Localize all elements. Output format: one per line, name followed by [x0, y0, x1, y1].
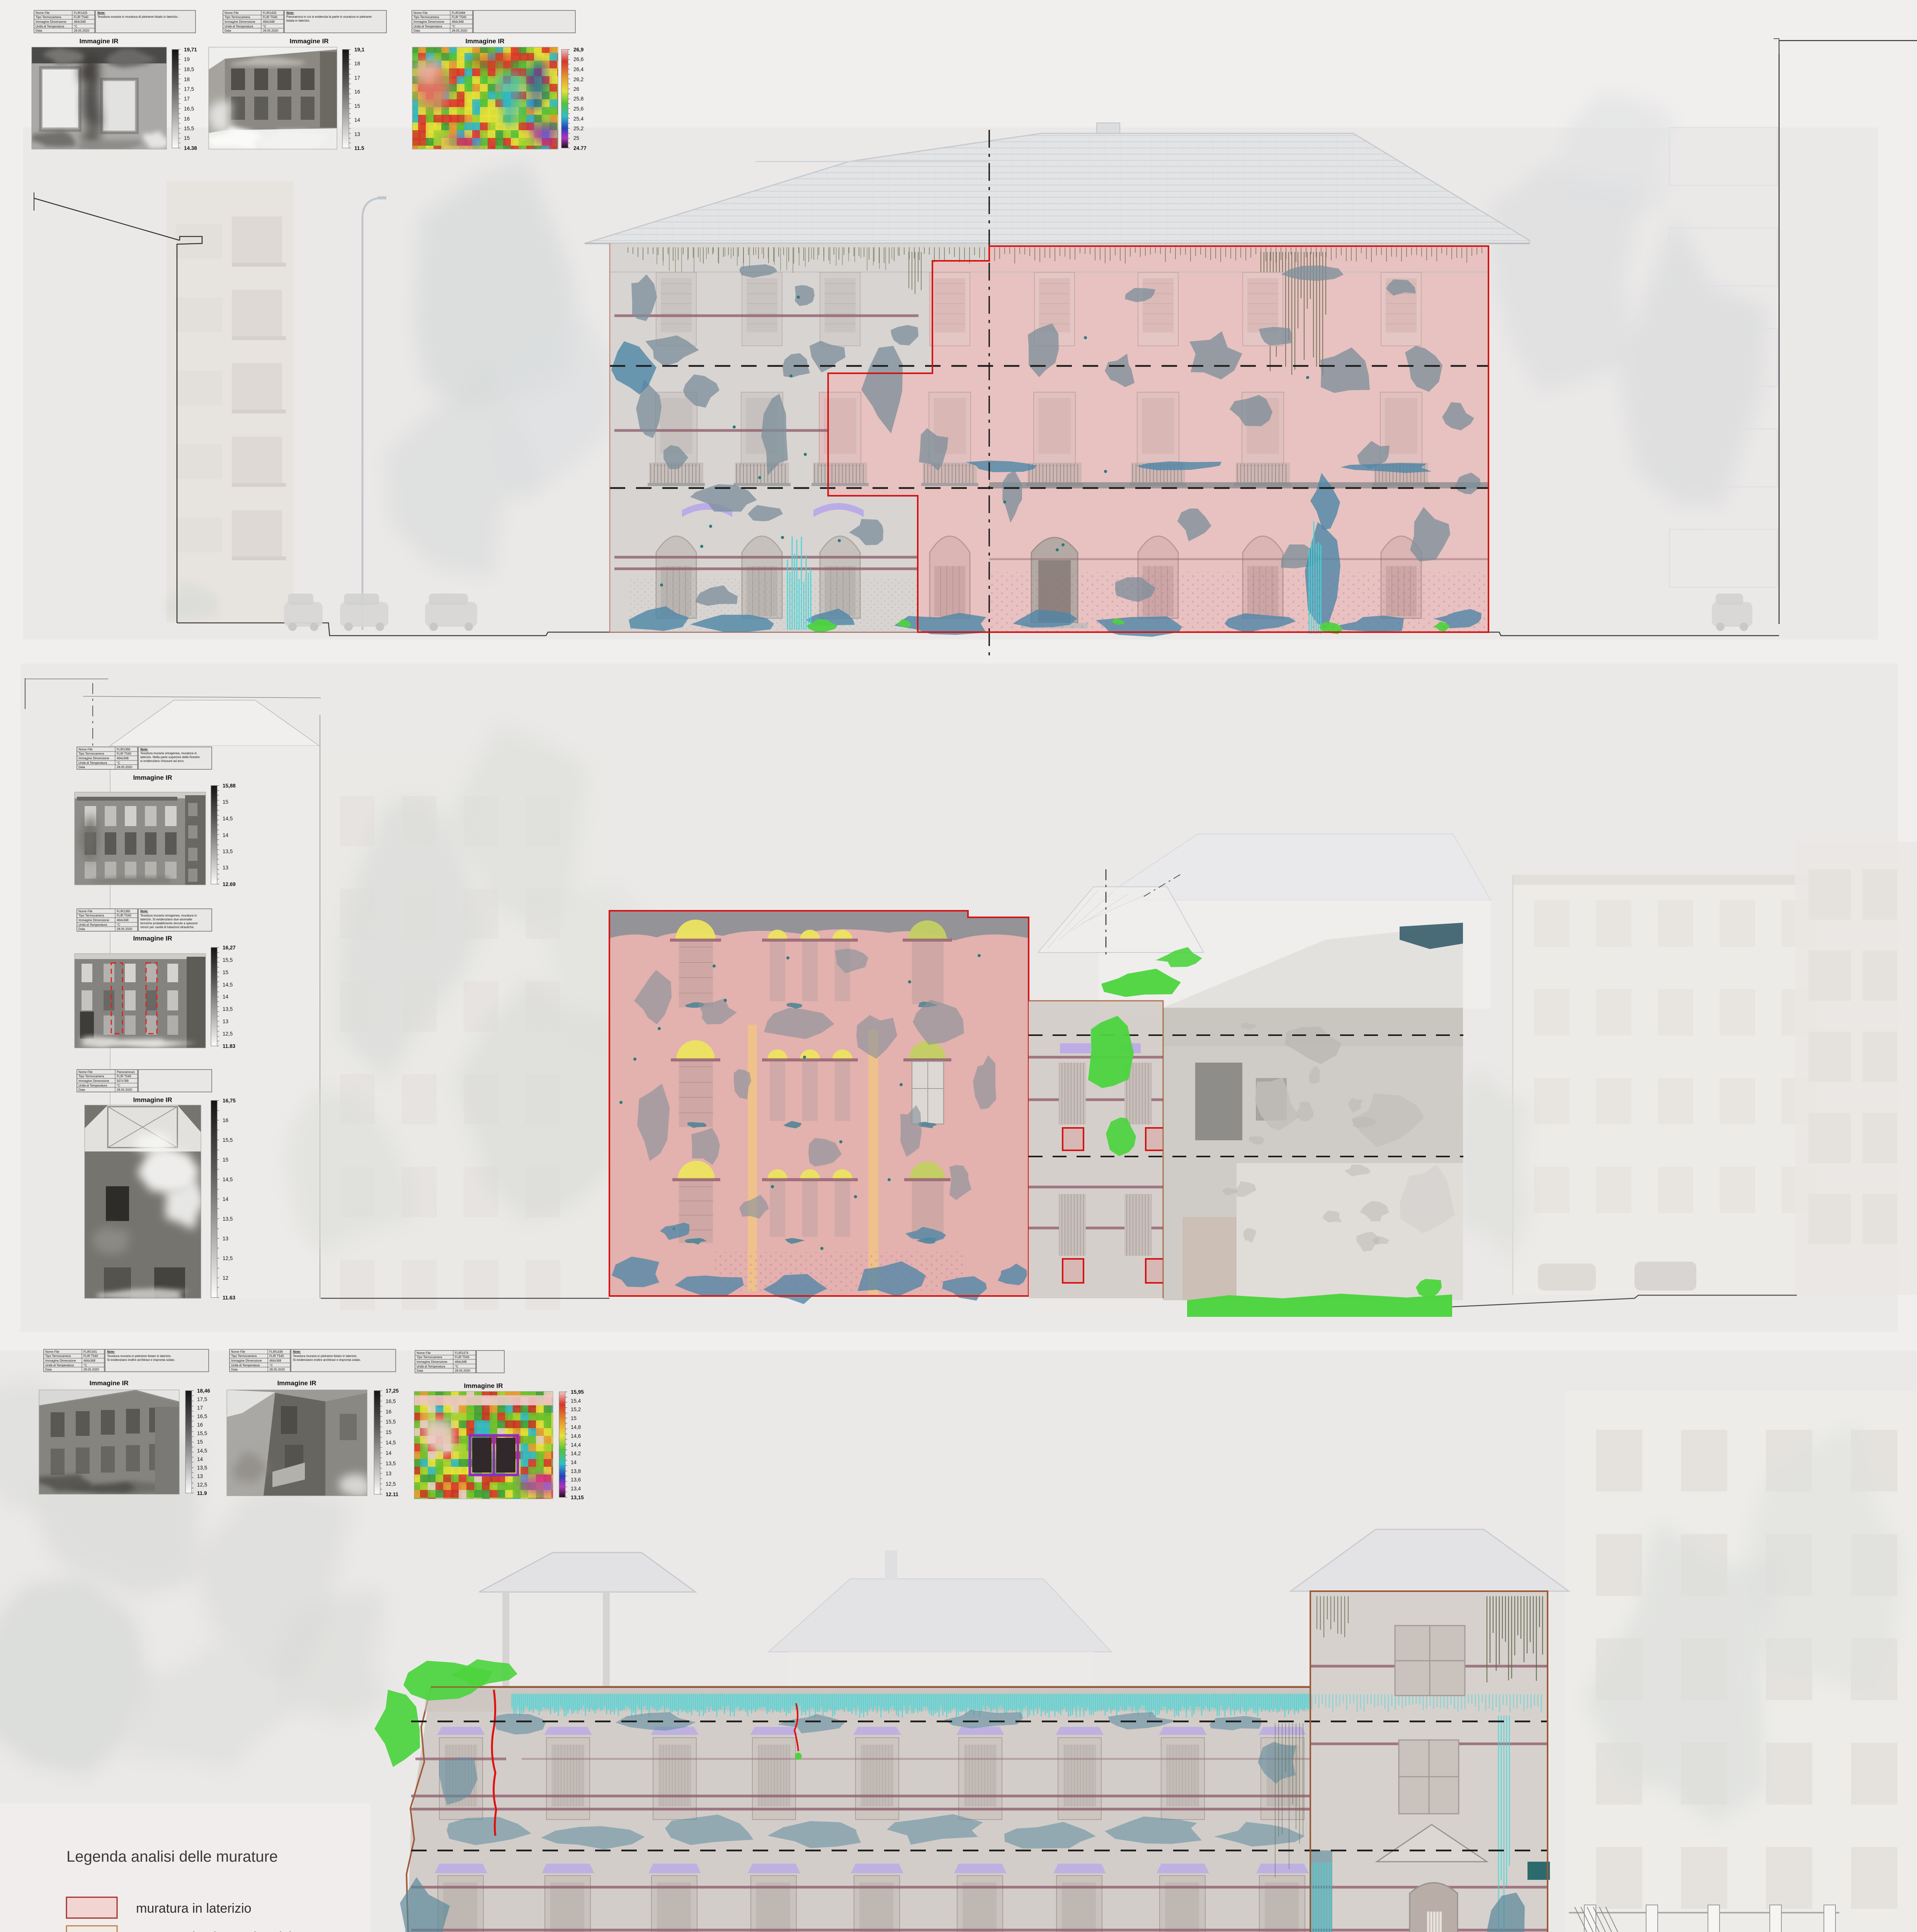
svg-text:Immagine IR: Immagine IR	[133, 774, 172, 781]
svg-text:Data: Data	[45, 1368, 52, 1371]
svg-text:14: 14	[223, 1196, 229, 1202]
svg-text:FLIR1366: FLIR1366	[117, 748, 131, 751]
svg-text:FLIR1441: FLIR1441	[83, 1350, 97, 1354]
svg-text:FLIR1436: FLIR1436	[269, 1350, 283, 1354]
svg-text:507x789: 507x789	[117, 1079, 129, 1083]
svg-text:FLIR T540: FLIR T540	[74, 15, 88, 19]
svg-text:16: 16	[223, 1117, 228, 1123]
svg-text:Note:: Note:	[293, 1350, 301, 1354]
svg-text:13,5: 13,5	[223, 1006, 233, 1012]
svg-text:13,5: 13,5	[223, 849, 233, 854]
svg-text:464x348: 464x348	[117, 757, 129, 760]
svg-text:Tessitura muraria in pietrame: Tessitura muraria in pietrame listato in…	[293, 1354, 357, 1358]
svg-text:26,6: 26,6	[573, 56, 583, 62]
svg-text:Immagine Dimensione: Immagine Dimensione	[231, 1359, 262, 1362]
svg-text:13: 13	[223, 1236, 228, 1242]
svg-text:Unità di Temperatura: Unità di Temperatura	[413, 25, 442, 28]
svg-text:28.05.2020: 28.05.2020	[117, 927, 133, 931]
svg-text:15: 15	[223, 799, 228, 805]
svg-text:Unità di Temperatura: Unità di Temperatura	[45, 1364, 74, 1367]
svg-text:Tipo Termocamera: Tipo Termocamera	[413, 15, 439, 19]
svg-text:13: 13	[386, 1471, 391, 1476]
svg-text:Immagine IR: Immagine IR	[133, 935, 172, 942]
svg-text:Nome File: Nome File	[78, 910, 93, 913]
svg-text:16,75: 16,75	[223, 1098, 236, 1104]
svg-text:Si evidenziano inoltre architr: Si evidenziano inoltre architravi e impr…	[107, 1358, 175, 1362]
svg-text:Data: Data	[78, 1088, 85, 1092]
svg-text:13,6: 13,6	[571, 1477, 581, 1483]
svg-text:Immagine IR: Immagine IR	[289, 37, 328, 45]
svg-text:FLIR T540: FLIR T540	[452, 15, 466, 19]
svg-text:16: 16	[184, 116, 190, 122]
svg-text:28.05.2020: 28.05.2020	[455, 1369, 471, 1372]
svg-text:26,9: 26,9	[573, 47, 583, 53]
svg-text:13: 13	[354, 131, 360, 137]
svg-text:15,95: 15,95	[571, 1389, 584, 1395]
svg-text:13,5: 13,5	[386, 1461, 396, 1466]
svg-text:FLIR T540: FLIR T540	[455, 1355, 469, 1359]
svg-text:13,4: 13,4	[571, 1486, 581, 1492]
svg-text:13,8: 13,8	[571, 1468, 581, 1474]
svg-text:12,5: 12,5	[223, 1255, 233, 1261]
svg-text:Immagine Dimensione: Immagine Dimensione	[78, 918, 109, 922]
svg-text:15: 15	[184, 135, 190, 141]
svg-text:°C: °C	[455, 1365, 458, 1368]
svg-text:listata in laterizio.: listata in laterizio.	[286, 19, 310, 22]
svg-text:si evidenziano chiusure ad arc: si evidenziano chiusure ad arco.	[140, 759, 184, 763]
svg-text:19,1: 19,1	[354, 47, 365, 53]
svg-text:°C: °C	[452, 25, 455, 28]
svg-text:Unità di Temperatura: Unità di Temperatura	[36, 25, 65, 28]
svg-text:Tipo Termocamera: Tipo Termocamera	[45, 1354, 71, 1358]
svg-text:minori per cavità di tubazioni: minori per cavità di tubazioni idraulich…	[140, 925, 194, 929]
svg-text:25,8: 25,8	[573, 96, 583, 102]
svg-text:13: 13	[197, 1473, 203, 1479]
svg-text:13: 13	[223, 1019, 228, 1024]
svg-text:Nome File: Nome File	[231, 1350, 245, 1354]
svg-text:14,5: 14,5	[386, 1440, 396, 1446]
svg-text:FLIR T540: FLIR T540	[269, 1354, 284, 1358]
svg-text:17,5: 17,5	[197, 1396, 207, 1402]
svg-text:11.63: 11.63	[223, 1295, 236, 1301]
svg-text:Note:: Note:	[140, 910, 148, 913]
svg-text:14,5: 14,5	[223, 816, 233, 821]
svg-text:12,5: 12,5	[386, 1481, 396, 1487]
svg-text:Data: Data	[225, 29, 231, 32]
svg-text:Unità di Temperatura: Unità di Temperatura	[225, 25, 253, 28]
svg-text:FLIR1425: FLIR1425	[74, 11, 88, 15]
svg-text:18,5: 18,5	[184, 66, 194, 72]
svg-text:26,2: 26,2	[573, 77, 583, 82]
svg-text:Panoramica in cui si evidenzia: Panoramica in cui si evidenzia la parte …	[286, 15, 372, 19]
svg-text:28.05.2020: 28.05.2020	[74, 29, 90, 32]
svg-text:14: 14	[223, 994, 229, 1000]
svg-text:Immagine Dimensione: Immagine Dimensione	[225, 20, 255, 24]
svg-text:16: 16	[197, 1422, 203, 1428]
svg-text:Nome File: Nome File	[78, 1070, 93, 1074]
svg-text:13: 13	[223, 865, 228, 871]
svg-text:18,46: 18,46	[197, 1388, 210, 1394]
svg-text:13,5: 13,5	[197, 1465, 207, 1471]
svg-text:15,88: 15,88	[223, 783, 236, 789]
svg-text:Immagine IR: Immagine IR	[464, 1382, 503, 1389]
svg-text:28.05.2020: 28.05.2020	[83, 1368, 99, 1371]
svg-text:Tessitura muraria omogenea, mu: Tessitura muraria omogenea, muratura in	[140, 752, 197, 755]
svg-text:25: 25	[573, 135, 579, 141]
svg-text:Immagine IR: Immagine IR	[277, 1379, 316, 1387]
svg-text:12: 12	[223, 1275, 228, 1281]
svg-text:15,5: 15,5	[386, 1419, 396, 1425]
svg-text:464x348: 464x348	[269, 1359, 281, 1362]
svg-text:FLIR T540: FLIR T540	[117, 752, 131, 755]
svg-text:16,5: 16,5	[386, 1398, 396, 1404]
svg-text:15: 15	[354, 103, 360, 109]
svg-text:°C: °C	[117, 923, 120, 927]
svg-text:Tessitura muraria omogenea, mu: Tessitura muraria omogenea, muratura in	[140, 914, 197, 917]
svg-text:laterizio. Nella parte superio: laterizio. Nella parte superiore delle f…	[140, 755, 200, 759]
svg-text:°C: °C	[263, 25, 266, 28]
svg-text:Nome File: Nome File	[45, 1350, 60, 1354]
svg-text:15,5: 15,5	[197, 1430, 207, 1436]
svg-text:°C: °C	[117, 761, 120, 765]
svg-text:°C: °C	[83, 1364, 87, 1367]
svg-text:14,5: 14,5	[223, 982, 233, 988]
svg-text:17,5: 17,5	[184, 86, 194, 92]
svg-text:Immagine IR: Immagine IR	[465, 37, 504, 45]
svg-text:FLIR1433: FLIR1433	[263, 11, 277, 15]
svg-text:Immagine Dimensione: Immagine Dimensione	[45, 1359, 76, 1362]
svg-text:muratura in pietra e laterizio: muratura in pietra e laterizio	[136, 1930, 299, 1932]
svg-text:Data: Data	[417, 1369, 423, 1372]
svg-text:25,4: 25,4	[573, 116, 584, 122]
svg-text:Note:: Note:	[140, 748, 148, 751]
svg-text:Unità di Temperatura: Unità di Temperatura	[78, 923, 107, 927]
svg-text:12,5: 12,5	[223, 1031, 233, 1037]
svg-text:Immagine IR: Immagine IR	[79, 37, 118, 45]
svg-text:15: 15	[223, 969, 228, 975]
svg-text:464x348: 464x348	[455, 1360, 467, 1364]
svg-text:28.05.2020: 28.05.2020	[117, 765, 133, 769]
svg-text:Si evidenziano inoltre architr: Si evidenziano inoltre architravi e impr…	[293, 1358, 361, 1362]
svg-text:termiche probabilmente dovute: termiche probabilmente dovute a spessori	[140, 922, 198, 925]
svg-text:11.9: 11.9	[197, 1490, 207, 1496]
svg-text:15,4: 15,4	[571, 1398, 581, 1404]
svg-text:464x348: 464x348	[83, 1359, 95, 1362]
svg-text:Immagine Dimensione: Immagine Dimensione	[36, 20, 66, 24]
svg-text:17: 17	[354, 75, 360, 81]
svg-text:464x348: 464x348	[452, 20, 464, 24]
svg-text:Tipo Termocamera: Tipo Termocamera	[231, 1354, 257, 1358]
svg-text:Nome File: Nome File	[225, 11, 239, 15]
svg-text:18: 18	[184, 77, 190, 82]
svg-text:Nome File: Nome File	[413, 11, 428, 15]
svg-text:Tessitura muraria in muratura: Tessitura muraria in muratura di pietram…	[97, 15, 178, 19]
svg-text:Data: Data	[36, 29, 42, 32]
svg-text:°C: °C	[74, 25, 77, 28]
svg-text:Data: Data	[231, 1368, 238, 1371]
svg-text:14: 14	[223, 832, 229, 838]
svg-text:Unità di Temperatura: Unità di Temperatura	[417, 1365, 446, 1368]
svg-text:14,8: 14,8	[571, 1424, 581, 1430]
svg-text:15,5: 15,5	[184, 126, 194, 131]
svg-text:14,2: 14,2	[571, 1451, 581, 1456]
svg-text:17: 17	[197, 1405, 203, 1411]
svg-text:Tipo Termocamera: Tipo Termocamera	[78, 752, 104, 755]
svg-text:14: 14	[571, 1459, 577, 1465]
svg-text:14,4: 14,4	[571, 1442, 581, 1448]
svg-text:FLIR T540: FLIR T540	[117, 914, 131, 917]
svg-text:28.05.2020: 28.05.2020	[117, 1088, 133, 1092]
svg-text:Panoramica1: Panoramica1	[117, 1070, 135, 1074]
svg-text:Immagine Dimensione: Immagine Dimensione	[78, 757, 109, 760]
svg-text:19: 19	[184, 56, 190, 62]
svg-text:Unità di Temperatura: Unità di Temperatura	[78, 1084, 107, 1087]
svg-text:18: 18	[354, 61, 360, 66]
svg-text:Nome File: Nome File	[36, 11, 50, 15]
svg-text:14: 14	[354, 117, 361, 123]
svg-text:28.05.2020: 28.05.2020	[269, 1368, 285, 1371]
svg-text:11.83: 11.83	[223, 1043, 236, 1049]
svg-text:Tipo Termocamera: Tipo Termocamera	[36, 15, 61, 19]
svg-text:14,5: 14,5	[197, 1448, 207, 1454]
svg-text:Legenda analisi delle murature: Legenda analisi delle murature	[66, 1848, 278, 1865]
svg-text:14: 14	[386, 1450, 392, 1456]
svg-text:464x348: 464x348	[74, 20, 86, 24]
svg-text:Data: Data	[78, 765, 85, 769]
svg-text:12.69: 12.69	[223, 881, 236, 887]
svg-text:14,5: 14,5	[223, 1177, 233, 1182]
svg-text:26,4: 26,4	[573, 66, 584, 72]
svg-text:Nome File: Nome File	[417, 1351, 431, 1355]
svg-text:13,15: 13,15	[571, 1495, 584, 1500]
svg-text:FLIR1684: FLIR1684	[452, 11, 466, 15]
svg-text:FLIR T540: FLIR T540	[83, 1354, 98, 1358]
svg-text:Immagine Dimensione: Immagine Dimensione	[417, 1360, 447, 1364]
svg-text:Note:: Note:	[107, 1350, 115, 1354]
svg-text:17,25: 17,25	[386, 1388, 399, 1394]
svg-text:Note:: Note:	[286, 11, 294, 15]
svg-text:FLIR T540: FLIR T540	[117, 1075, 131, 1078]
svg-text:muratura in laterizio: muratura in laterizio	[136, 1901, 252, 1916]
svg-text:14: 14	[197, 1456, 203, 1462]
svg-text:Tipo Termocamera: Tipo Termocamera	[78, 914, 104, 917]
svg-text:Tipo Termocamera: Tipo Termocamera	[417, 1355, 442, 1359]
svg-text:16: 16	[386, 1409, 391, 1415]
svg-text:15,5: 15,5	[223, 957, 233, 963]
svg-text:14,6: 14,6	[571, 1433, 581, 1439]
svg-text:Immagine Dimensione: Immagine Dimensione	[78, 1079, 109, 1083]
svg-text:FLIR T540: FLIR T540	[263, 15, 277, 19]
svg-text:15: 15	[571, 1415, 577, 1421]
svg-text:12,5: 12,5	[197, 1482, 207, 1488]
svg-text:24.77: 24.77	[573, 145, 587, 151]
svg-text:15: 15	[386, 1429, 391, 1435]
svg-text:16,5: 16,5	[184, 106, 194, 112]
svg-text:Unità di Temperatura: Unità di Temperatura	[231, 1364, 260, 1367]
svg-text:19,71: 19,71	[184, 47, 197, 53]
svg-text:Immagine Dimensione: Immagine Dimensione	[413, 20, 444, 24]
svg-text:Immagine IR: Immagine IR	[133, 1096, 172, 1104]
svg-text:Data: Data	[78, 927, 85, 931]
svg-text:28.05.2020: 28.05.2020	[452, 29, 468, 32]
svg-text:25,6: 25,6	[573, 106, 583, 112]
svg-text:14.38: 14.38	[184, 145, 197, 151]
svg-text:464x348: 464x348	[263, 20, 275, 24]
svg-text:11.5: 11.5	[354, 145, 364, 151]
svg-text:°C: °C	[269, 1364, 273, 1367]
svg-text:15,5: 15,5	[223, 1137, 233, 1143]
svg-text:Tipo Termocamera: Tipo Termocamera	[225, 15, 250, 19]
svg-text:17: 17	[184, 96, 190, 102]
svg-text:15: 15	[223, 1157, 228, 1163]
svg-text:Note:: Note:	[97, 11, 105, 15]
svg-text:Data: Data	[413, 29, 420, 32]
svg-text:15: 15	[197, 1439, 203, 1445]
svg-text:12.11: 12.11	[386, 1492, 399, 1497]
svg-text:FLIR1474: FLIR1474	[455, 1351, 469, 1355]
svg-text:°C: °C	[117, 1084, 120, 1087]
svg-text:16: 16	[354, 89, 360, 95]
svg-text:Tessitura muraria in pietrame: Tessitura muraria in pietrame listato in…	[107, 1354, 172, 1358]
svg-text:15,2: 15,2	[571, 1406, 581, 1412]
svg-text:464x348: 464x348	[117, 918, 129, 922]
svg-text:Immagine IR: Immagine IR	[89, 1379, 128, 1387]
svg-text:Nome File: Nome File	[78, 748, 93, 751]
svg-text:Unità di Temperatura: Unità di Temperatura	[78, 761, 107, 765]
svg-text:16,27: 16,27	[223, 945, 236, 951]
svg-text:26: 26	[573, 86, 579, 92]
svg-text:FLIR1365: FLIR1365	[117, 910, 131, 913]
svg-text:25,2: 25,2	[573, 126, 583, 131]
svg-text:13,5: 13,5	[223, 1216, 233, 1222]
svg-text:laterizio. Si evidenziano due: laterizio. Si evidenziano due anomalie	[140, 918, 192, 921]
svg-text:28.05.2020: 28.05.2020	[263, 29, 279, 32]
svg-text:Tipo Termocamera: Tipo Termocamera	[78, 1075, 104, 1078]
svg-text:16,5: 16,5	[197, 1413, 207, 1419]
